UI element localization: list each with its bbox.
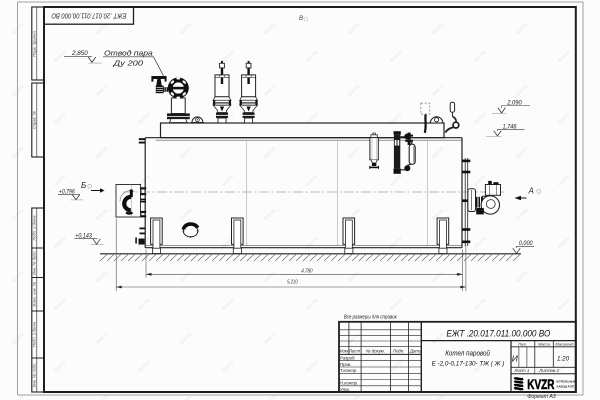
svg-text:ЕЖТ .20.017.011.00.000 ВО: ЕЖТ .20.017.011.00.000 ВО bbox=[51, 12, 126, 19]
svg-text:Масштаб: Масштаб bbox=[555, 341, 574, 346]
svg-text:KVZR: KVZR bbox=[527, 377, 554, 392]
svg-text:Дата: Дата bbox=[409, 349, 422, 354]
svg-text:Отвод пара: Отвод пара bbox=[104, 48, 153, 57]
svg-text:Пров.: Пров. bbox=[340, 362, 351, 367]
svg-text:КОТЕЛЬНЫЙ: КОТЕЛЬНЫЙ bbox=[556, 379, 576, 383]
svg-text:Н.контр.: Н.контр. bbox=[340, 381, 358, 386]
svg-text:№ докум.: № докум. bbox=[366, 349, 385, 354]
svg-text:1:20: 1:20 bbox=[557, 356, 570, 363]
svg-text:Изм Лист: Изм Лист bbox=[340, 349, 361, 354]
svg-text:Масса: Масса bbox=[538, 341, 550, 346]
svg-text:А: А bbox=[528, 186, 534, 195]
svg-text:ЗАВОД РЭП: ЗАВОД РЭП bbox=[556, 384, 575, 388]
svg-text:В: В bbox=[299, 16, 303, 22]
svg-text:Взам. инв. №: Взам. инв. № bbox=[32, 281, 37, 306]
svg-text:Перв. примен.: Перв. примен. bbox=[32, 30, 37, 57]
svg-text:Инв. № подл.: Инв. № подл. bbox=[32, 363, 37, 388]
svg-text:4.780: 4.780 bbox=[301, 268, 312, 274]
svg-text:Подп. и дата: Подп. и дата bbox=[32, 215, 37, 241]
svg-text:Подп.: Подп. bbox=[393, 349, 404, 354]
svg-text:Листов 2: Листов 2 bbox=[538, 368, 559, 373]
svg-text:Разраб.: Разраб. bbox=[340, 356, 356, 361]
svg-text:Котел паровой: Котел паровой bbox=[445, 349, 490, 357]
svg-text:И: И bbox=[512, 354, 519, 364]
svg-text:Лист 1: Лист 1 bbox=[513, 368, 530, 373]
svg-text:Все размеры для справок: Все размеры для справок bbox=[344, 315, 398, 321]
svg-text:Утв.: Утв. bbox=[340, 387, 350, 392]
svg-text:Т.контр.: Т.контр. bbox=[340, 368, 357, 373]
svg-text:Лит.: Лит. bbox=[517, 341, 527, 346]
svg-text:Справ. №: Справ. № bbox=[32, 110, 37, 129]
svg-text:5.210: 5.210 bbox=[287, 280, 298, 286]
svg-text:Ду 200: Ду 200 bbox=[112, 58, 143, 67]
svg-text:ЕЖТ .20.017.011.00.000 ВО: ЕЖТ .20.017.011.00.000 ВО bbox=[446, 329, 550, 339]
svg-text:Инв. № дубл.: Инв. № дубл. bbox=[32, 250, 37, 275]
svg-text:Подп. и дата: Подп. и дата bbox=[32, 321, 37, 347]
svg-text:Б: Б bbox=[81, 181, 86, 190]
svg-text:Формат А3: Формат А3 bbox=[527, 394, 555, 400]
svg-text:Е -2,0-0,17-130- ТЖ ( Ж ): Е -2,0-0,17-130- ТЖ ( Ж ) bbox=[432, 361, 505, 368]
